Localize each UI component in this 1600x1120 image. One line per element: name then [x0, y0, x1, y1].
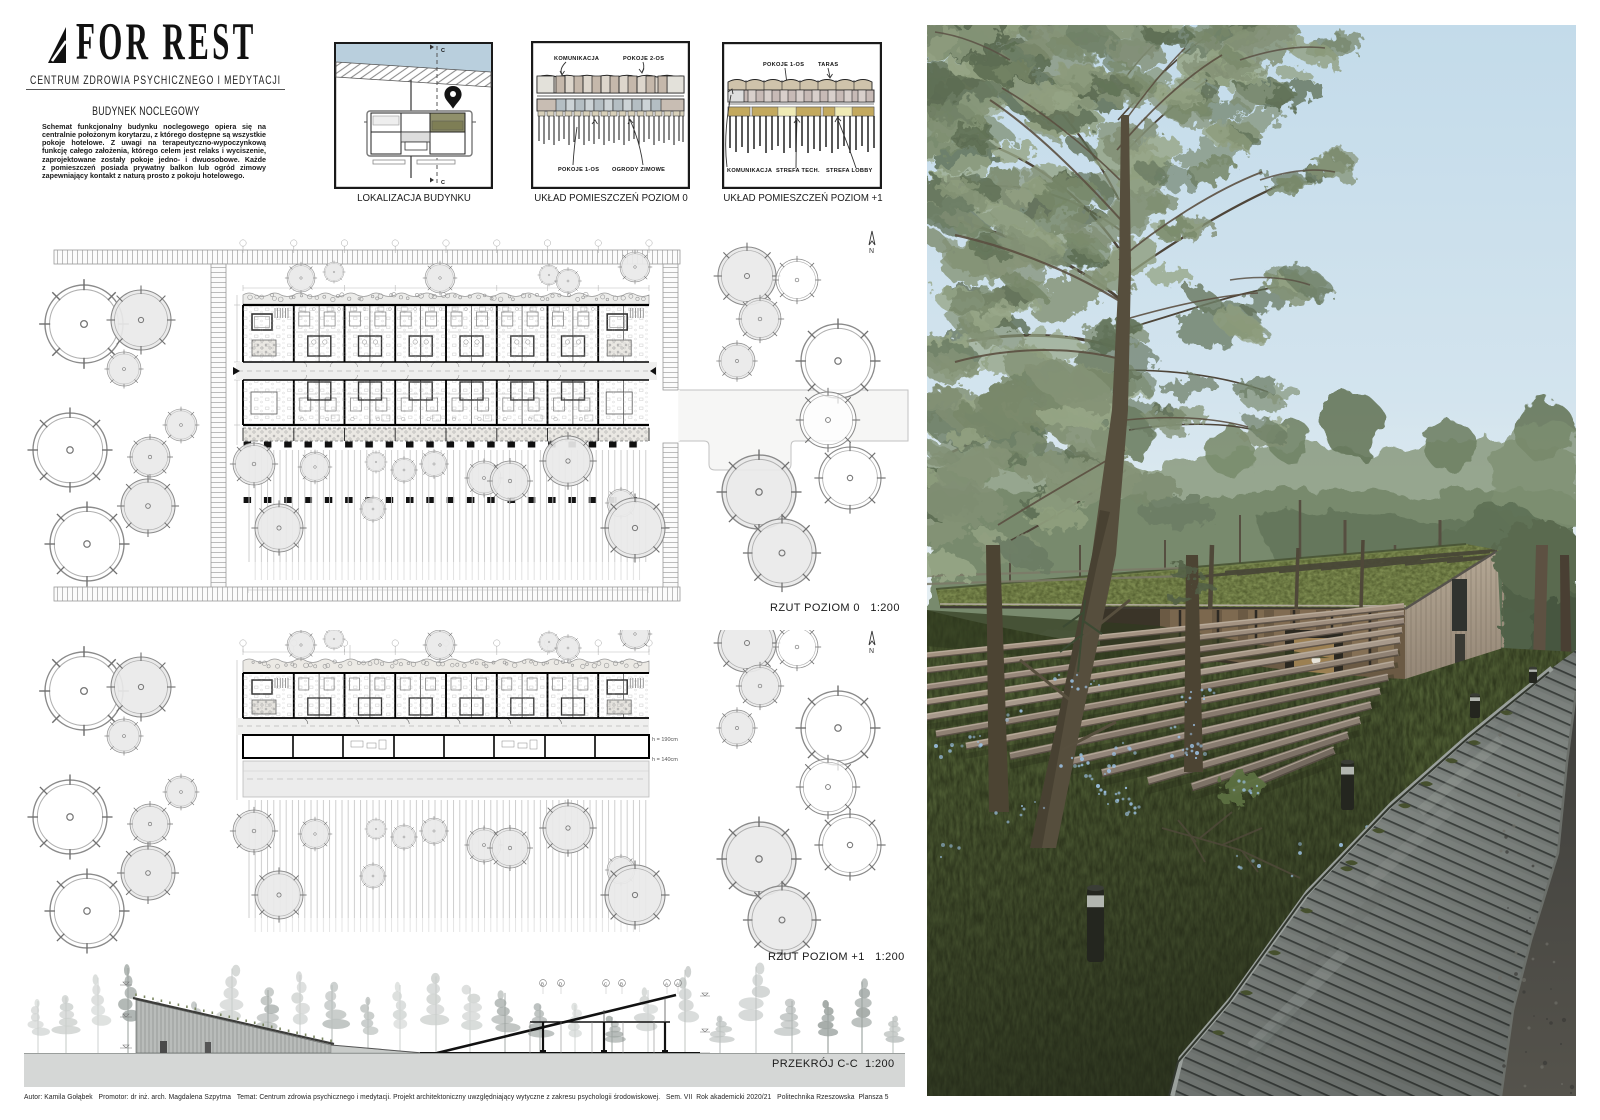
svg-text:C: C [441, 180, 445, 186]
svg-text:h = 190cm: h = 190cm [652, 737, 678, 743]
svg-text:STREFA LOBBY: STREFA LOBBY [826, 168, 873, 174]
svg-text:h = 140cm: h = 140cm [652, 757, 678, 763]
svg-text:N: N [869, 248, 874, 255]
svg-text:POKOJE 2-OS: POKOJE 2-OS [623, 56, 664, 62]
svg-text:B: B [541, 982, 544, 987]
svg-text:B: B [620, 982, 623, 987]
svg-text:C: C [604, 982, 608, 987]
svg-text:C: C [441, 48, 445, 54]
svg-text:POKOJE 1-OS: POKOJE 1-OS [763, 62, 804, 68]
svg-text:POKOJE 1-OS: POKOJE 1-OS [558, 167, 599, 173]
svg-text:D: D [559, 982, 563, 987]
svg-text:KOMUNIKACJA: KOMUNIKACJA [554, 56, 599, 62]
svg-text:N: N [869, 648, 874, 655]
svg-text:A: A [676, 982, 679, 987]
svg-text:A: A [665, 982, 668, 987]
svg-text:STREFA TECH.: STREFA TECH. [776, 168, 820, 174]
svg-text:KOMUNIKACJA: KOMUNIKACJA [727, 168, 772, 174]
svg-text:TARAS: TARAS [818, 62, 838, 68]
svg-text:OGRODY ZIMOWE: OGRODY ZIMOWE [612, 167, 665, 173]
